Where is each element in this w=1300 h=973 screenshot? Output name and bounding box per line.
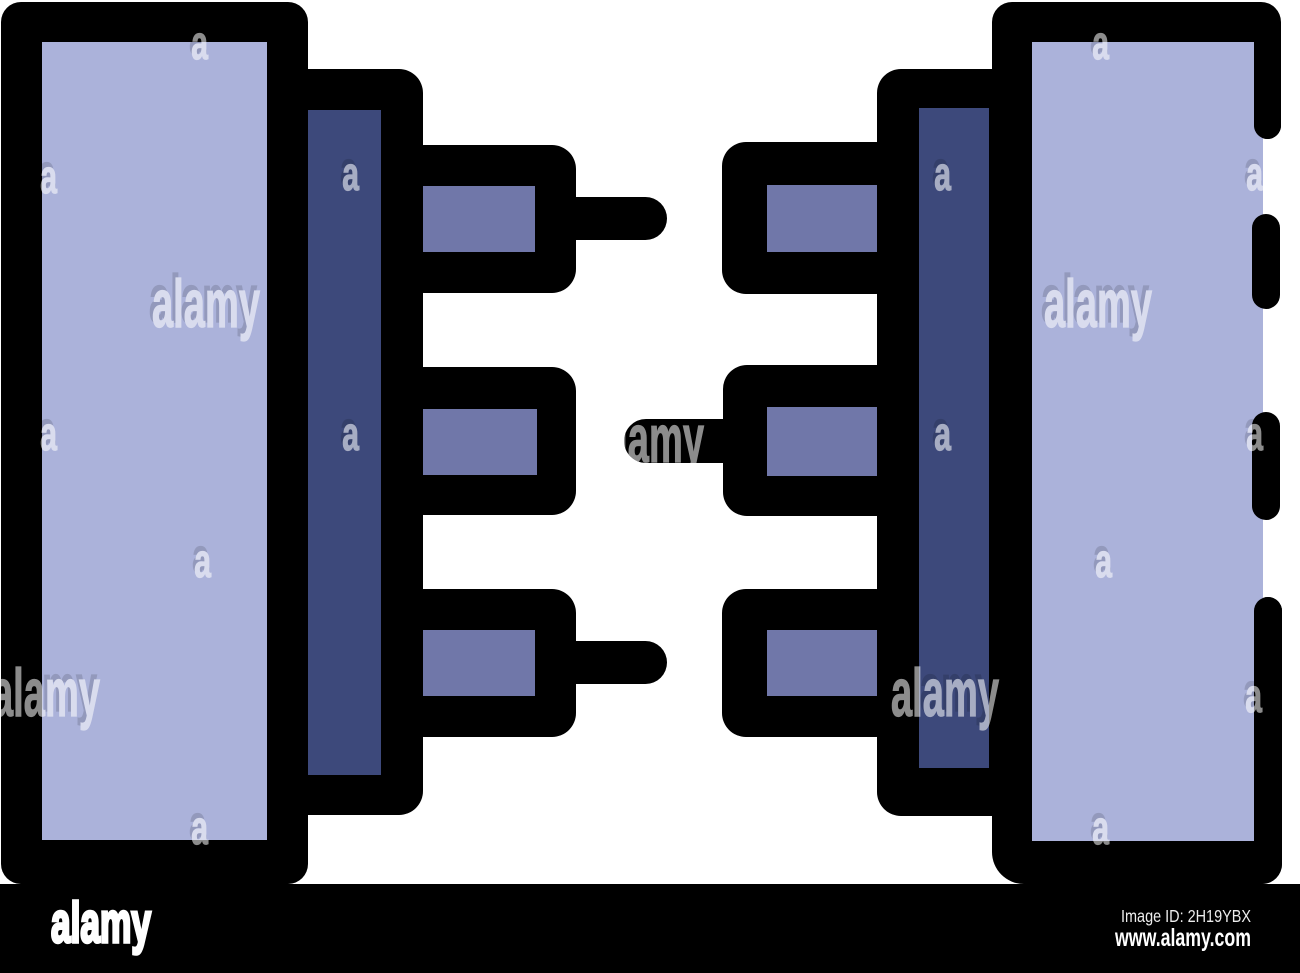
svg-text:alamy: alamy	[1044, 266, 1152, 342]
svg-text:a: a	[40, 408, 58, 460]
svg-text:alamy: alamy	[0, 655, 100, 731]
svg-text:a: a	[342, 148, 360, 200]
svg-text:a: a	[1246, 148, 1264, 200]
svg-text:a: a	[1246, 408, 1264, 460]
svg-text:a: a	[1092, 802, 1110, 854]
svg-text:a: a	[40, 151, 58, 203]
svg-text:www.alamy.com: www.alamy.com	[1114, 924, 1251, 952]
svg-text:Image ID: 2H19YBX: Image ID: 2H19YBX	[1121, 906, 1251, 926]
svg-text:a: a	[191, 17, 209, 69]
svg-text:a: a	[194, 535, 212, 587]
svg-text:a: a	[934, 148, 952, 200]
svg-text:a: a	[1095, 535, 1113, 587]
svg-text:a: a	[342, 408, 360, 460]
svg-text:a: a	[1092, 17, 1110, 69]
svg-text:a: a	[191, 802, 209, 854]
svg-text:a: a	[934, 408, 952, 460]
svg-text:a: a	[1245, 670, 1263, 722]
svg-text:alamy: alamy	[51, 891, 151, 955]
svg-text:alamy: alamy	[152, 266, 260, 342]
svg-text:alamy: alamy	[891, 655, 999, 731]
